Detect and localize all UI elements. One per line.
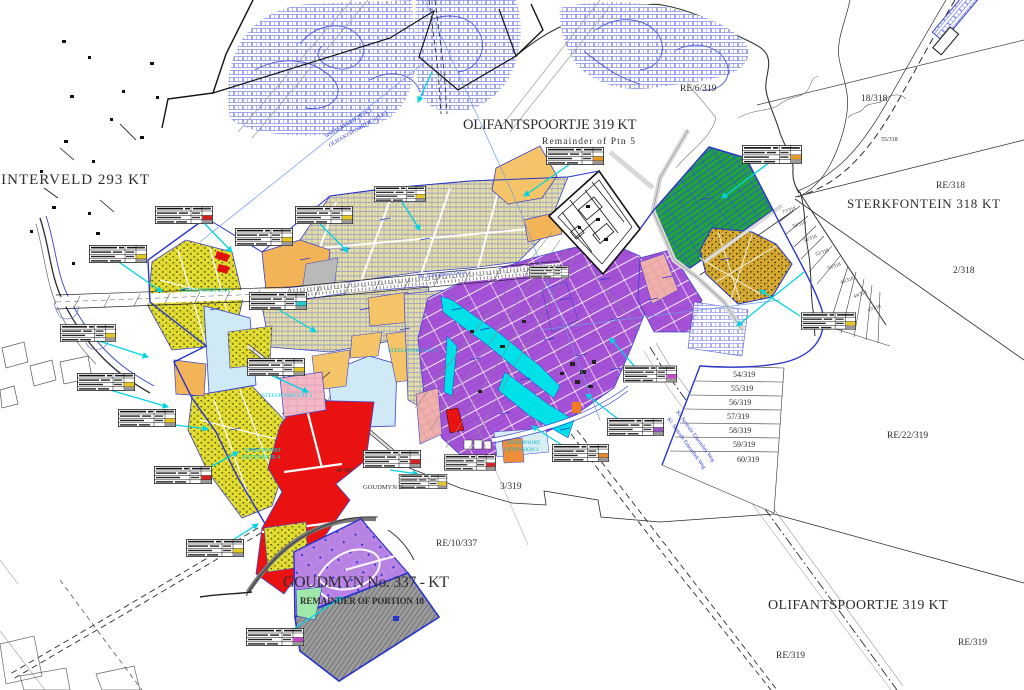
svg-text:STEELPOORT EXT 2: STEELPOORT EXT 2	[388, 348, 438, 354]
svg-text:GOUDMYN No. 337 - KT: GOUDMYN No. 337 - KT	[283, 574, 449, 591]
svg-text:STERKFONTEIN 318 KT: STERKFONTEIN 318 KT	[847, 196, 1000, 211]
svg-text:57/319: 57/319	[727, 412, 749, 421]
svg-text:STEELPOORT EXT: STEELPOORT EXT	[180, 288, 231, 294]
svg-text:RE/22/319: RE/22/319	[887, 431, 928, 441]
svg-text:18/318: 18/318	[861, 94, 888, 104]
svg-text:60/319: 60/319	[737, 455, 759, 464]
svg-text:40/387: 40/387	[336, 468, 353, 474]
svg-text:REMAINDER OF PORTION 10: REMAINDER OF PORTION 10	[300, 596, 425, 606]
svg-text:RE/10/337: RE/10/337	[436, 539, 477, 549]
svg-text:2/318: 2/318	[953, 266, 975, 276]
svg-text:EXTENSION J: EXTENSION J	[504, 447, 539, 453]
svg-text:OLIFANTSPOORTJE 319 KT: OLIFANTSPOORTJE 319 KT	[768, 598, 948, 613]
svg-text:WINTERVELD 293 KT: WINTERVELD 293 KT	[0, 172, 150, 188]
svg-text:55/319: 55/319	[731, 384, 753, 393]
svg-text:56/319: 56/319	[729, 398, 751, 407]
svg-text:RE/319: RE/319	[958, 638, 987, 648]
svg-text:STEELPOORT EXT 5: STEELPOORT EXT 5	[262, 393, 312, 399]
svg-text:RE/319: RE/319	[776, 651, 805, 661]
svg-text:Remainder of Ptn 5: Remainder of Ptn 5	[542, 136, 635, 147]
svg-text:54/319: 54/319	[733, 370, 755, 379]
svg-text:RE/318: RE/318	[936, 181, 965, 191]
svg-text:59/319: 59/319	[733, 440, 755, 449]
svg-text:OLIFANTSPOORTJE 319 KT: OLIFANTSPOORTJE 319 KT	[463, 117, 637, 133]
svg-text:RE/6/319: RE/6/319	[680, 84, 717, 94]
svg-text:GOUDMYN N: GOUDMYN N	[363, 484, 404, 491]
svg-text:STEELPOORT: STEELPOORT	[506, 440, 541, 446]
svg-text:EXTENSION 4: EXTENSION 4	[242, 455, 280, 461]
svg-text:3/319: 3/319	[500, 482, 522, 492]
svg-text:STEELPOORT: STEELPOORT	[244, 448, 282, 454]
svg-text:58/319: 58/319	[729, 426, 751, 435]
svg-text:55/318: 55/318	[881, 137, 898, 143]
